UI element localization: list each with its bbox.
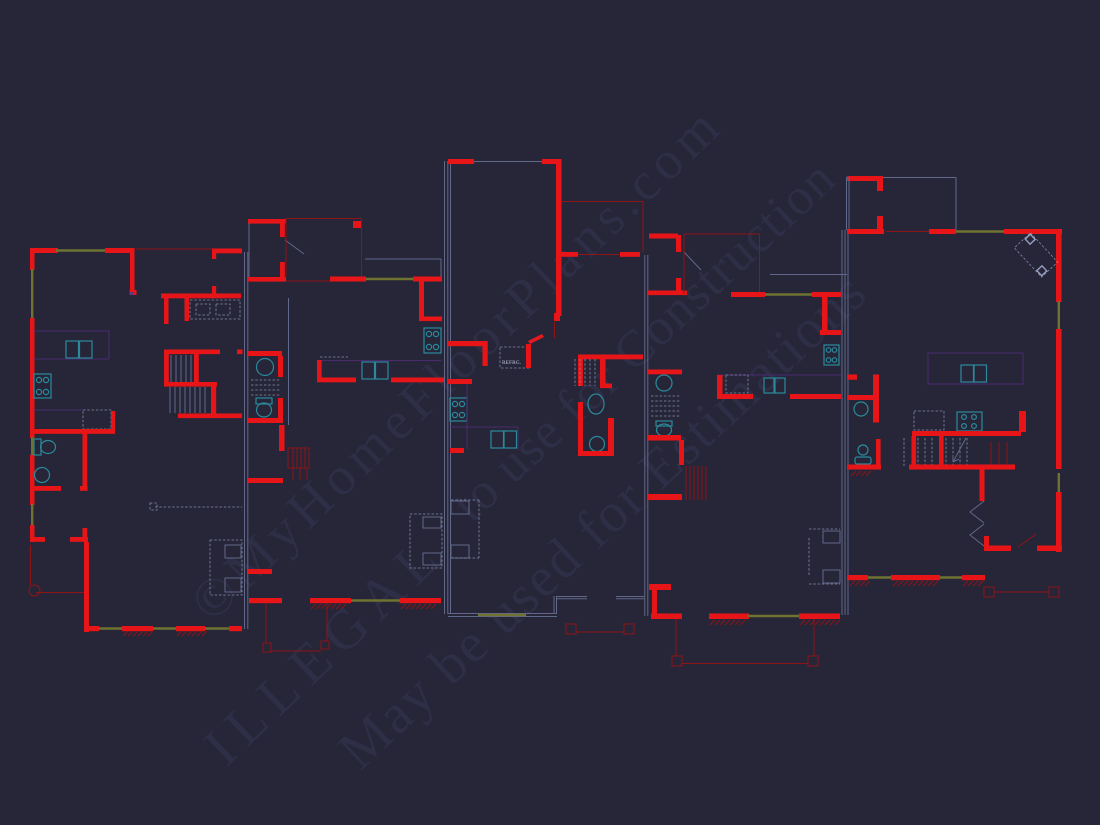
svg-text:REFRG.: REFRG.	[502, 360, 522, 366]
